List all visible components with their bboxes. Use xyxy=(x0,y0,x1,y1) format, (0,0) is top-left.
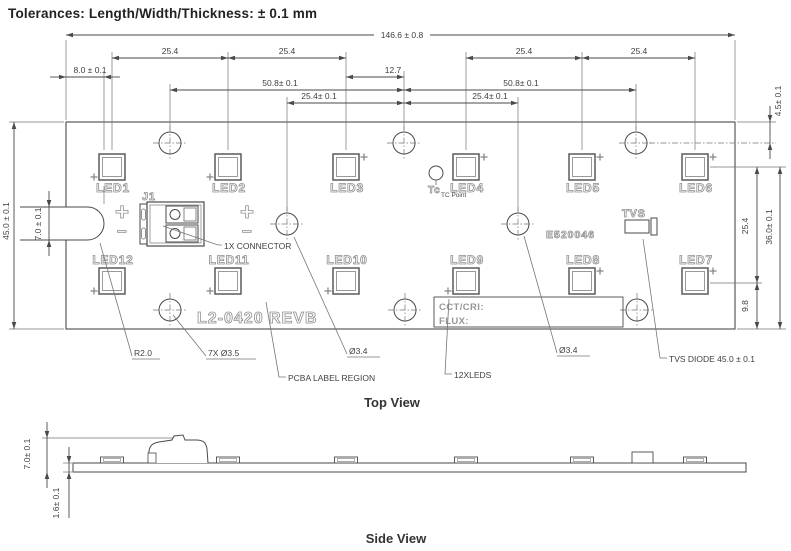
silk-minus: − xyxy=(242,222,253,241)
dim-text: 4.5± 0.1 xyxy=(773,85,783,116)
dim-arrow xyxy=(511,101,518,106)
dim-arrow xyxy=(728,33,735,38)
side-board xyxy=(73,463,746,472)
label-flux: FLUX: xyxy=(439,316,469,327)
led-LED12 xyxy=(99,268,125,294)
led-LED11 xyxy=(215,268,241,294)
dim-arrow xyxy=(466,56,473,61)
dim-arrow xyxy=(170,88,177,93)
side-connector-latch xyxy=(148,453,156,463)
dim-text: 36.0± 0.1 xyxy=(764,209,774,245)
dim-arrow xyxy=(397,75,404,80)
connector-ref: J1 xyxy=(142,191,156,203)
dim-arrow xyxy=(629,88,636,93)
tvs-body xyxy=(625,220,649,233)
dim-text: 25.4± 0.1 xyxy=(301,91,337,101)
dim-arrow xyxy=(755,167,760,174)
dim-text: 25.4± 0.1 xyxy=(472,91,508,101)
dim-text: 1.6± 0.1 xyxy=(51,487,61,518)
led-label: LED7 xyxy=(679,253,713,267)
dim-arrow xyxy=(768,143,773,150)
dim-arrow xyxy=(346,75,353,80)
callout-text: 7X Ø3.5 xyxy=(208,348,239,358)
dim-arrow xyxy=(47,200,52,207)
led-label: LED10 xyxy=(326,253,367,267)
led-label: LED2 xyxy=(212,181,246,195)
dim-arrow xyxy=(397,101,404,106)
dim-arrow xyxy=(778,167,783,174)
dim-text: 25.4 xyxy=(740,217,750,234)
side-tvs-bump xyxy=(632,452,653,463)
dim-arrow xyxy=(404,88,411,93)
side-led-bump xyxy=(455,457,478,463)
side-connector-profile xyxy=(148,435,208,463)
dim-arrow xyxy=(287,101,294,106)
dim-arrow xyxy=(768,115,773,122)
tvs-cap xyxy=(651,218,657,235)
led-LED1 xyxy=(99,154,125,180)
side-led-bump xyxy=(571,457,594,463)
connector-j1 xyxy=(140,202,204,246)
dim-arrow xyxy=(104,75,111,80)
dim-arrow xyxy=(778,322,783,329)
led-label: LED6 xyxy=(679,181,713,195)
callout-text: 1X CONNECTOR xyxy=(224,241,291,251)
led-label: LED5 xyxy=(566,181,600,195)
side-led-bump xyxy=(335,457,358,463)
dim-arrow xyxy=(755,283,760,290)
led-LED3 xyxy=(333,154,359,180)
led-LED8 xyxy=(569,268,595,294)
dim-text: 25.4 xyxy=(516,46,533,56)
led-label: LED3 xyxy=(330,181,364,195)
dim-text: 146.6 ± 0.8 xyxy=(381,30,424,40)
callout-text: Ø3.4 xyxy=(349,346,368,356)
callout-text: PCBA LABEL REGION xyxy=(288,373,375,383)
tc-point-label: TC Point xyxy=(441,192,466,199)
callout-text: R2.0 xyxy=(134,348,152,358)
callout-text: 12XLEDS xyxy=(454,370,492,380)
top-view-label: Top View xyxy=(364,395,421,410)
dim-text: 25.4 xyxy=(631,46,648,56)
technical-drawing: LED1LED2LED3LED4LED5LED6LED12LED11LED10L… xyxy=(0,0,791,551)
led-LED6 xyxy=(682,154,708,180)
dim-arrow xyxy=(755,322,760,329)
dim-arrow xyxy=(404,101,411,106)
dim-arrow xyxy=(112,56,119,61)
dim-arrow xyxy=(67,472,72,479)
dim-arrow xyxy=(221,56,228,61)
dim-arrow xyxy=(12,322,17,329)
dim-text: 7.0 ± 0.1 xyxy=(33,207,43,240)
dim-text: 50.8± 0.1 xyxy=(262,78,298,88)
callout-text: Ø3.4 xyxy=(559,345,578,355)
led-LED10 xyxy=(333,268,359,294)
dim-arrow xyxy=(228,56,235,61)
dim-arrow xyxy=(755,276,760,283)
dim-text: 8.0 ± 0.1 xyxy=(73,65,106,75)
tc-silk-label: Tc xyxy=(428,185,441,196)
dim-arrow xyxy=(582,56,589,61)
cert-number: E520046 xyxy=(546,229,595,241)
silk-minus: − xyxy=(117,222,128,241)
dim-arrow xyxy=(45,431,50,438)
dim-text: 9.8 xyxy=(740,300,750,312)
dim-text: 50.8± 0.1 xyxy=(503,78,539,88)
side-view-label: Side View xyxy=(366,531,427,546)
dim-arrow xyxy=(45,472,50,479)
dim-text: 25.4 xyxy=(162,46,179,56)
dim-text: 12.7 xyxy=(385,65,402,75)
side-led-bump xyxy=(217,457,240,463)
dim-arrow xyxy=(47,240,52,247)
dim-arrow xyxy=(575,56,582,61)
led-LED4 xyxy=(453,154,479,180)
led-label: LED9 xyxy=(450,253,484,267)
dim-text: 7.0± 0.1 xyxy=(22,438,32,469)
led-label: LED8 xyxy=(566,253,600,267)
led-LED7 xyxy=(682,268,708,294)
side-led-bump xyxy=(101,457,124,463)
dim-arrow xyxy=(688,56,695,61)
dim-arrow xyxy=(66,33,73,38)
label-cct-cri: CCT/CRI: xyxy=(439,302,484,313)
led-LED2 xyxy=(215,154,241,180)
dim-text: 25.4 xyxy=(279,46,296,56)
dim-text: 45.0 ± 0.1 xyxy=(1,202,11,240)
dim-arrow xyxy=(12,122,17,129)
dim-arrow xyxy=(339,56,346,61)
drawing-page: Tolerances: Length/Width/Thickness: ± 0.… xyxy=(0,0,791,551)
tvs-label: TVS xyxy=(622,208,646,220)
part-number: L2-0420 REVB xyxy=(197,310,318,327)
tc-point-pad xyxy=(429,166,443,180)
side-led-bump xyxy=(684,457,707,463)
led-label: LED11 xyxy=(209,253,250,267)
led-LED5 xyxy=(569,154,595,180)
callout-text: TVS DIODE 45.0 ± 0.1 xyxy=(669,354,755,364)
dim-arrow xyxy=(59,75,66,80)
led-LED9 xyxy=(453,268,479,294)
led-label: LED1 xyxy=(96,181,130,195)
dim-arrow xyxy=(397,88,404,93)
led-label: LED12 xyxy=(92,253,133,267)
dim-arrow xyxy=(67,456,72,463)
